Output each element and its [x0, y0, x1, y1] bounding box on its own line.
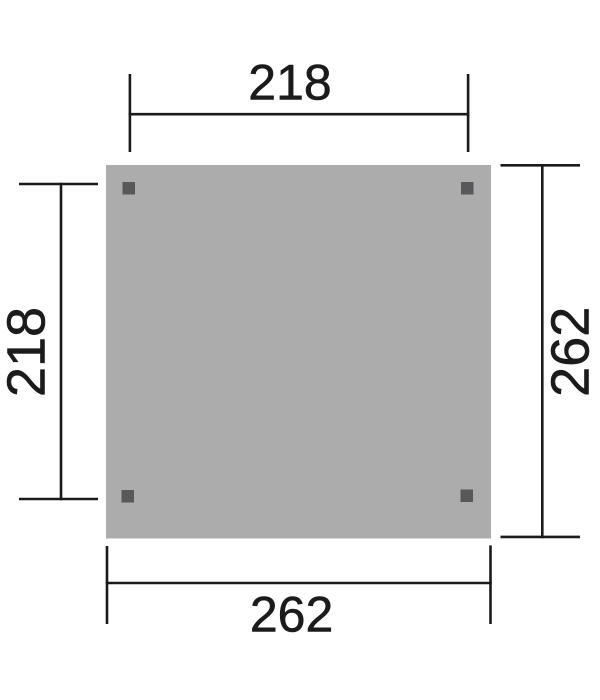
svg-text:262: 262	[541, 307, 600, 397]
svg-text:262: 262	[250, 587, 333, 643]
svg-text:218: 218	[0, 307, 57, 397]
svg-text:218: 218	[248, 55, 331, 111]
